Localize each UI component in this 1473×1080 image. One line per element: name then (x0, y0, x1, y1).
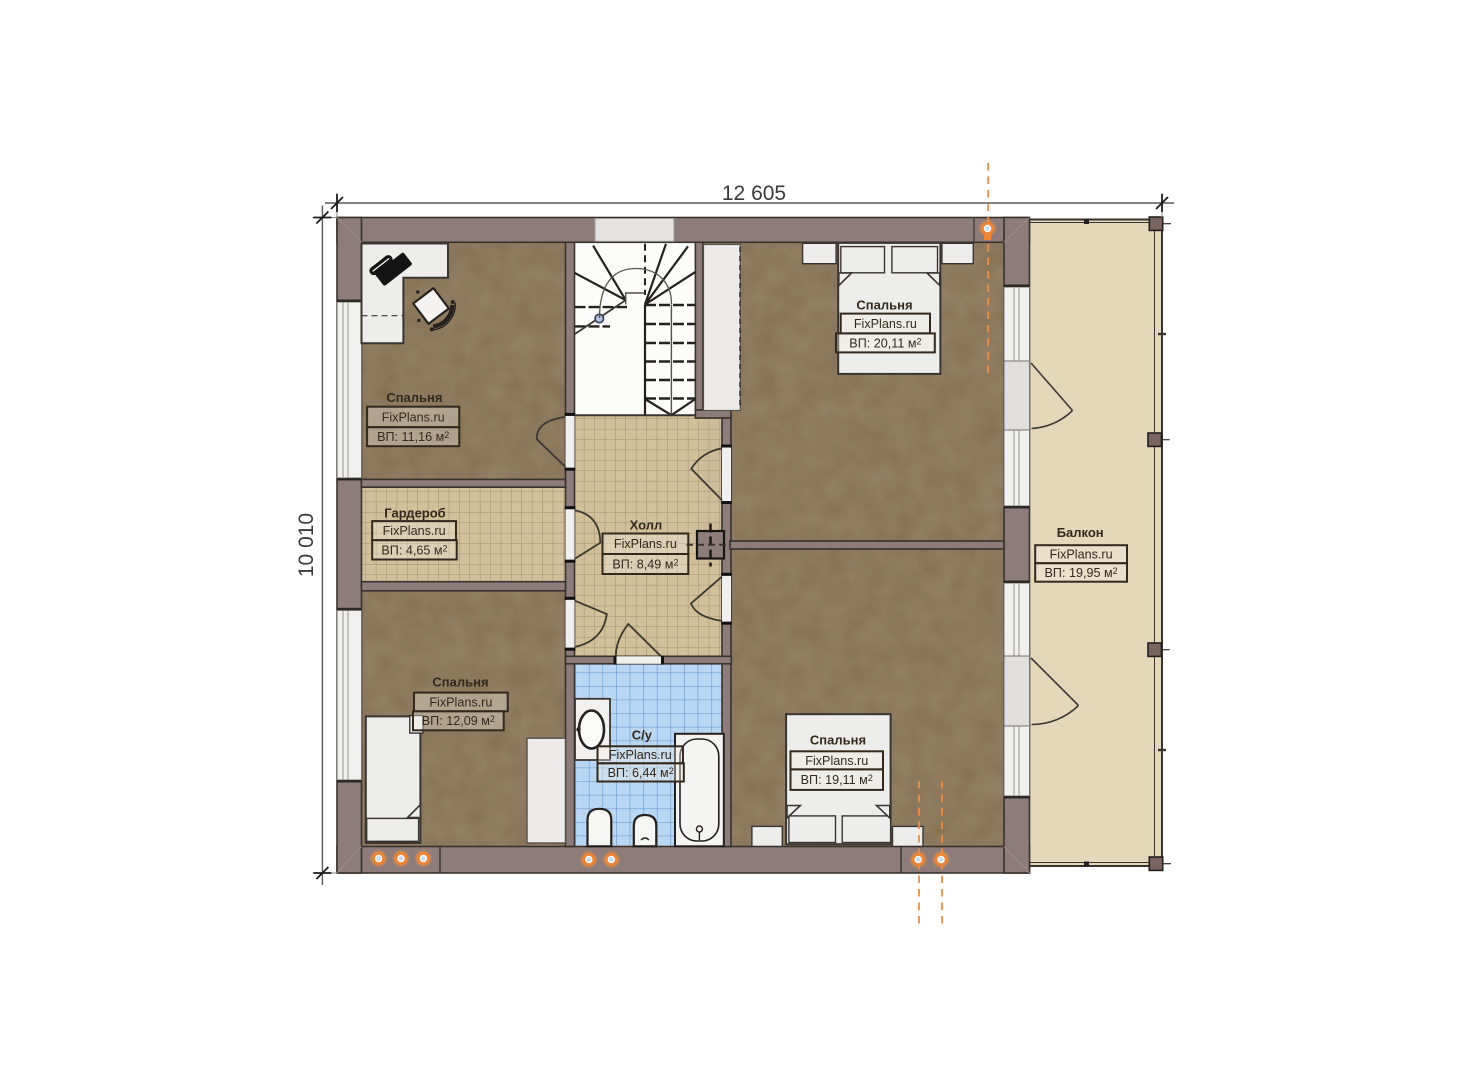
svg-text:FixPlans.ru: FixPlans.ru (614, 537, 677, 551)
svg-text:FixPlans.ru: FixPlans.ru (805, 754, 868, 768)
svg-text:С/у: С/у (632, 728, 653, 743)
svg-text:Спальня: Спальня (856, 298, 912, 313)
svg-text:Гардероб: Гардероб (384, 506, 445, 521)
svg-text:Балкон: Балкон (1057, 525, 1104, 540)
svg-text:ВП: 19,95 м2: ВП: 19,95 м2 (1045, 566, 1118, 580)
svg-text:FixPlans.ru: FixPlans.ru (609, 748, 672, 762)
svg-text:ВП: 20,11 м2: ВП: 20,11 м2 (849, 336, 921, 350)
svg-text:Спальня: Спальня (432, 675, 488, 690)
svg-text:FixPlans.ru: FixPlans.ru (429, 695, 492, 709)
svg-text:ВП: 8,49 м2: ВП: 8,49 м2 (612, 557, 678, 571)
svg-text:ВП: 11,16 м2: ВП: 11,16 м2 (377, 430, 449, 444)
svg-text:ВП: 4,65 м2: ВП: 4,65 м2 (381, 543, 447, 557)
svg-text:FixPlans.ru: FixPlans.ru (1050, 548, 1113, 562)
svg-text:FixPlans.ru: FixPlans.ru (382, 410, 445, 424)
svg-text:Спальня: Спальня (810, 733, 866, 748)
svg-text:ВП: 12,09 м2: ВП: 12,09 м2 (422, 714, 495, 728)
svg-text:12 605: 12 605 (722, 182, 786, 205)
svg-text:ВП: 19,11 м2: ВП: 19,11 м2 (801, 773, 873, 787)
svg-text:ВП: 6,44 м2: ВП: 6,44 м2 (608, 766, 674, 780)
svg-text:FixPlans.ru: FixPlans.ru (383, 524, 446, 538)
svg-text:FixPlans.ru: FixPlans.ru (854, 317, 917, 331)
svg-text:Спальня: Спальня (386, 390, 442, 405)
svg-text:Холл: Холл (630, 518, 663, 533)
svg-text:10 010: 10 010 (295, 513, 318, 577)
